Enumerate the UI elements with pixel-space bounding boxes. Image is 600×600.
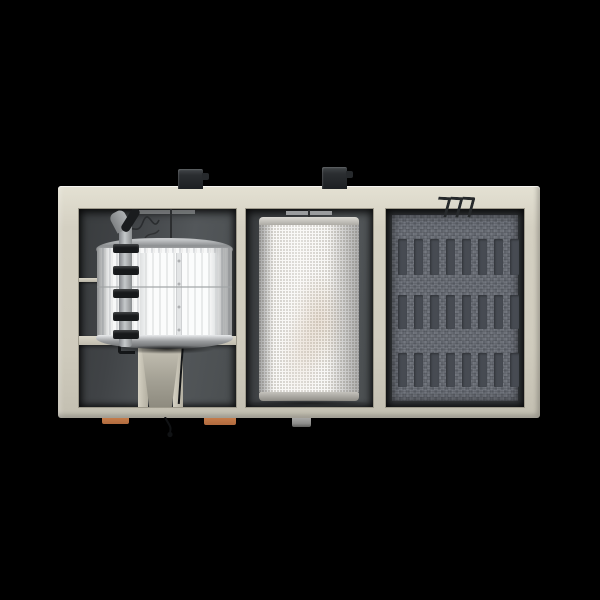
drum-front-panel: [140, 253, 217, 336]
coil-slot: [462, 239, 471, 275]
pipe-clamp: [113, 289, 139, 298]
junction-box-tab: [346, 171, 353, 178]
pipe-clamp: [113, 266, 139, 275]
coil-media: [392, 215, 518, 401]
pipe-clamp-group: [113, 209, 139, 407]
coil-slot: [494, 353, 503, 387]
copper-foot: [204, 418, 236, 425]
filter-mesh-body: [259, 225, 359, 392]
coil-slot: [494, 239, 503, 275]
coil-slot: [462, 295, 471, 329]
coil-slot: [430, 353, 439, 387]
coil-slot: [478, 295, 487, 329]
coil-slot: [398, 295, 407, 329]
pipe-clamp: [113, 244, 139, 253]
pipe-clamp: [113, 312, 139, 321]
junction-box: [178, 169, 203, 189]
coil-slot: [478, 239, 487, 275]
coil-slot: [446, 353, 455, 387]
coil-slot: [398, 353, 407, 387]
junction-box: [322, 167, 347, 189]
coil-slot-row: [396, 239, 516, 275]
fan-drum-section: [78, 208, 237, 408]
coil-slot-row: [396, 353, 516, 387]
pipe-clamp: [113, 330, 139, 339]
coil-slot: [510, 295, 519, 329]
coil-slot: [414, 353, 423, 387]
hanging-cable-icon: [158, 417, 182, 441]
coil-slot: [430, 295, 439, 329]
coil-slot: [446, 239, 455, 275]
coil-slot: [446, 295, 455, 329]
rotary-filter-section: [245, 208, 374, 408]
gray-foot: [292, 418, 311, 427]
rotary-filter-drum: [259, 217, 359, 401]
coil-media-section: [385, 208, 525, 408]
coil-slot: [462, 353, 471, 387]
unit-casing: [58, 186, 540, 418]
coil-slot: [430, 239, 439, 275]
junction-box-tab: [202, 173, 209, 180]
coil-slot-row: [396, 295, 516, 329]
coil-slot: [398, 239, 407, 275]
coil-slot: [414, 239, 423, 275]
coil-slot: [510, 239, 519, 275]
coil-slot: [494, 295, 503, 329]
coil-slot: [510, 353, 519, 387]
render-stage: [0, 0, 600, 600]
coil-slot: [478, 353, 487, 387]
copper-foot: [102, 418, 129, 424]
coil-slot: [414, 295, 423, 329]
drum-seam-rivets: [176, 253, 182, 336]
filter-shadow: [252, 400, 366, 406]
